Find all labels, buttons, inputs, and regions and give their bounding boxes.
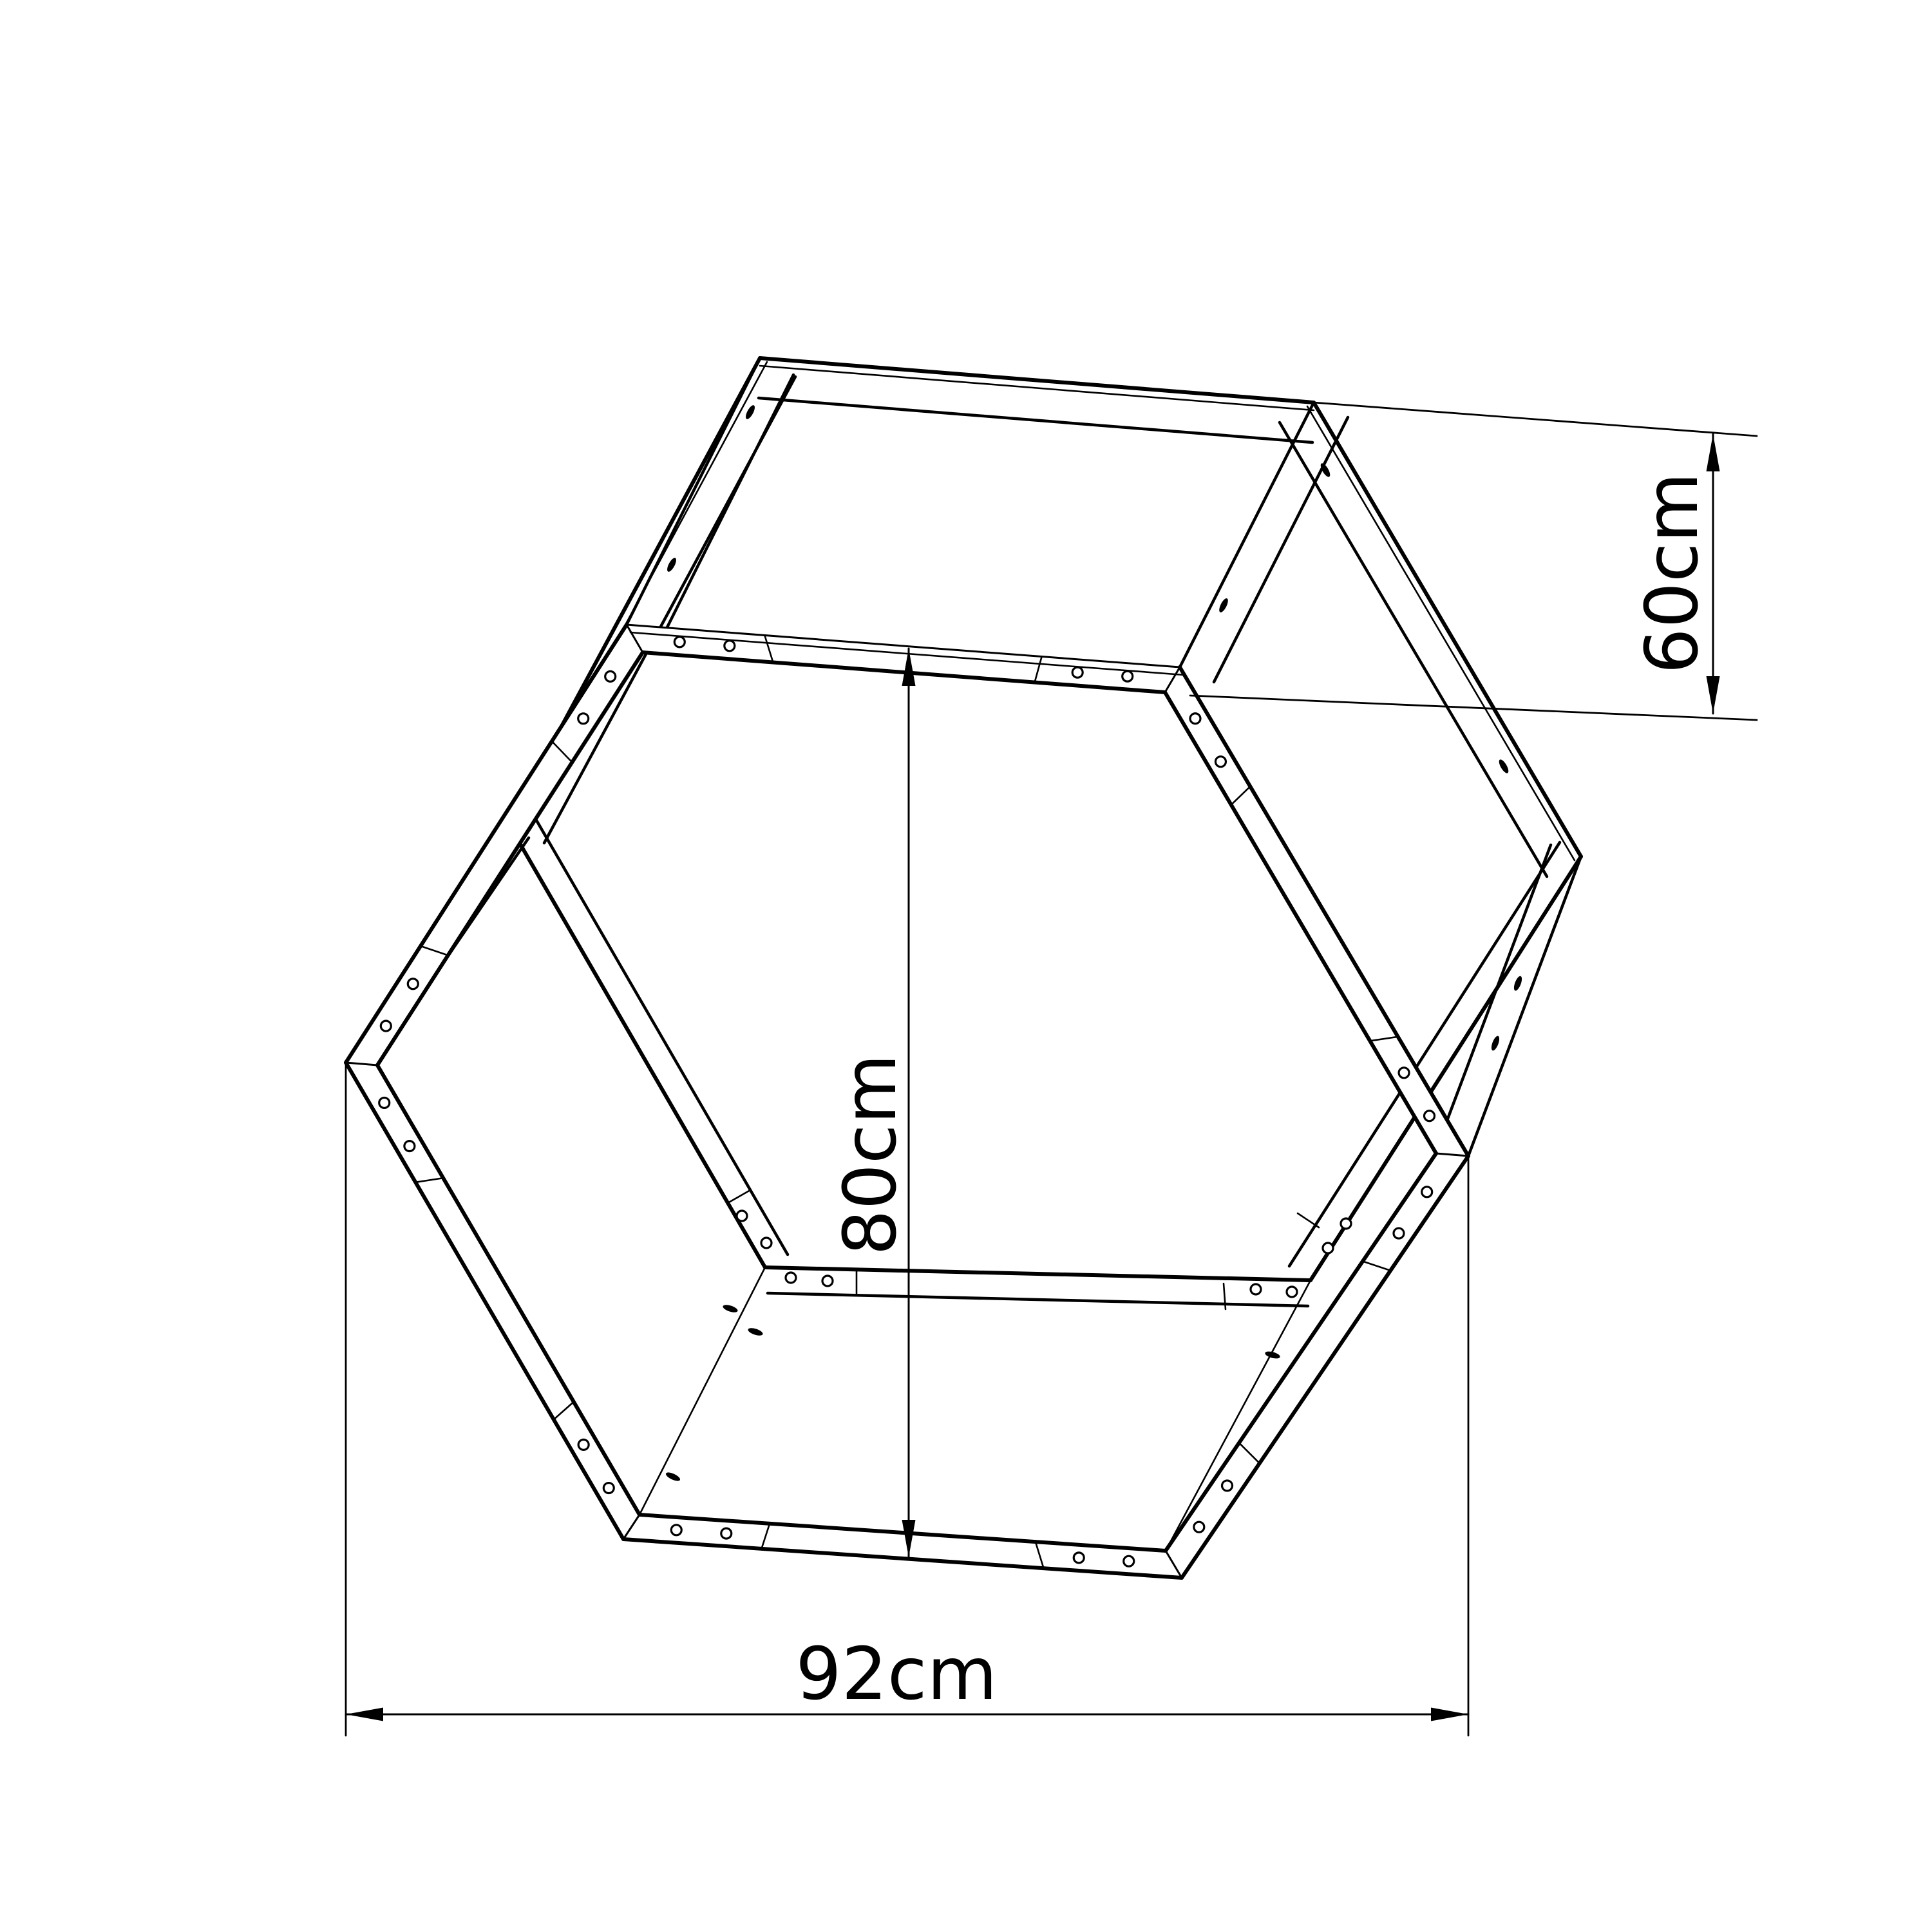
screw-hole — [381, 1021, 391, 1031]
screw-hole — [1190, 714, 1200, 724]
drawing-canvas: 60cm 80cm 92cm — [0, 0, 1932, 1932]
screw-hole — [1425, 1111, 1435, 1121]
screw-hole — [1072, 667, 1083, 677]
screw-hole — [1194, 1522, 1204, 1532]
screw-hole — [1215, 757, 1226, 767]
screw-hole — [379, 1097, 390, 1108]
screw-hole — [1124, 1556, 1134, 1566]
screw-hole — [671, 1525, 681, 1535]
screw-hole — [408, 979, 418, 989]
hexagonal-frame-technical-drawing: 60cm 80cm 92cm — [0, 0, 1932, 1932]
screw-hole — [1251, 1284, 1261, 1294]
screw-hole — [1399, 1068, 1409, 1078]
screw-hole — [737, 1211, 747, 1221]
screw-hole — [674, 637, 685, 647]
dimension-label-opening-height: 80cm — [829, 1054, 913, 1255]
screw-hole — [603, 1483, 614, 1493]
screw-hole — [721, 1528, 732, 1539]
dimension-label-overall-width: 92cm — [795, 1633, 997, 1716]
screw-hole — [1394, 1228, 1404, 1238]
screw-hole — [578, 714, 589, 724]
screw-hole — [761, 1238, 772, 1248]
screw-hole — [1074, 1553, 1084, 1563]
screw-hole — [786, 1273, 796, 1283]
screw-hole — [605, 671, 616, 681]
screw-hole — [1222, 1481, 1233, 1491]
screw-hole — [724, 641, 735, 651]
screw-hole — [1341, 1218, 1351, 1229]
screw-hole — [1422, 1187, 1432, 1197]
screw-hole — [1122, 671, 1133, 681]
screw-hole — [404, 1141, 415, 1151]
screw-hole — [1287, 1287, 1297, 1297]
screw-hole — [578, 1439, 589, 1450]
screw-hole — [822, 1276, 833, 1286]
screw-hole — [1323, 1243, 1333, 1253]
dimension-label-depth: 60cm — [1631, 472, 1714, 674]
